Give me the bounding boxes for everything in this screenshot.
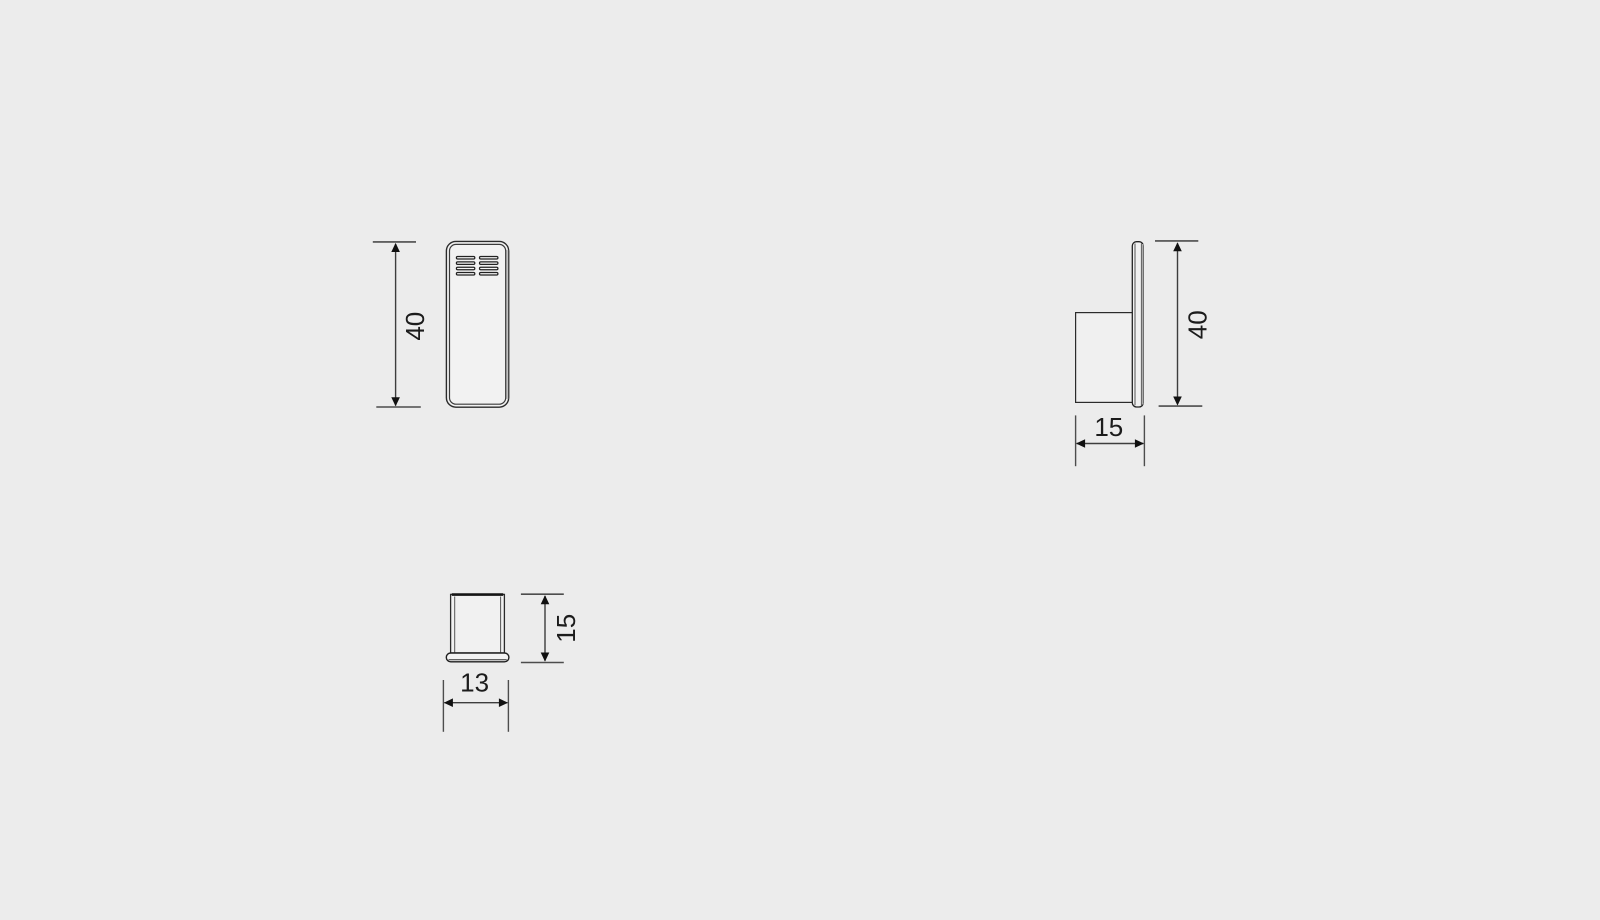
svg-text:13: 13 (460, 668, 489, 698)
svg-text:15: 15 (1094, 412, 1123, 442)
svg-text:40: 40 (1182, 310, 1212, 339)
svg-text:40: 40 (400, 312, 430, 341)
svg-text:15: 15 (551, 614, 581, 643)
